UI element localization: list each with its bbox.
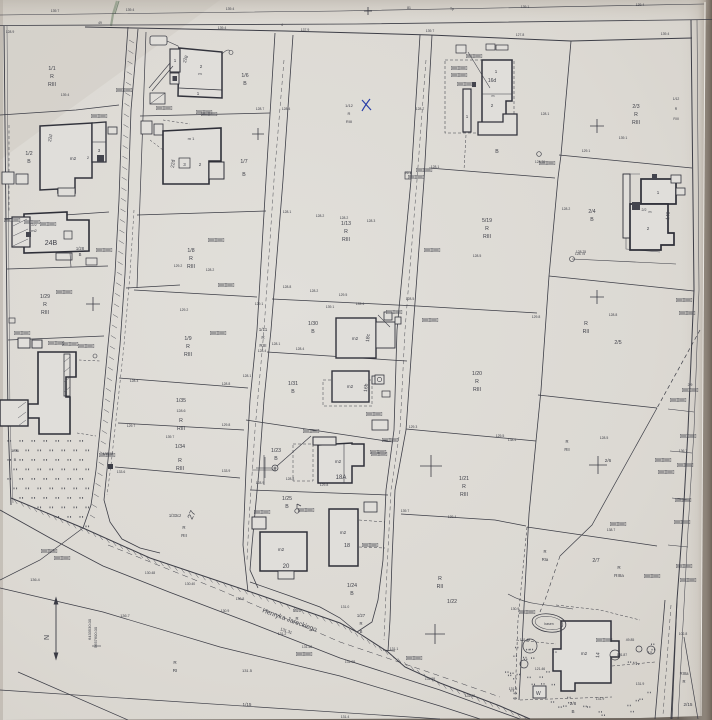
svg-text:128.2: 128.2 [206,268,215,272]
svg-text:1/12: 1/12 [673,97,680,101]
svg-text:18c: 18c [365,333,372,342]
svg-text:131.1: 131.1 [390,647,399,651]
svg-text:B: B [590,217,594,223]
svg-text:129.1: 129.1 [255,302,264,306]
svg-text:128.75: 128.75 [576,250,586,254]
svg-text:136.4: 136.4 [30,578,40,582]
svg-text:129.1: 129.1 [582,149,591,153]
svg-text:1/25: 1/25 [282,496,292,502]
svg-text:128.8: 128.8 [283,285,292,289]
svg-text:14: 14 [595,652,601,658]
svg-text:B: B [495,149,499,155]
svg-text:2/8: 2/8 [570,701,577,706]
svg-text:131.2: 131.2 [278,632,287,636]
svg-text:m: m [492,94,495,98]
svg-text:B: B [14,457,17,462]
svg-text:139.4: 139.4 [226,7,235,11]
svg-text:139.4: 139.4 [636,3,645,7]
svg-text:49.85: 49.85 [626,638,635,642]
svg-text:R: R [344,229,348,235]
svg-text:R: R [50,74,54,80]
svg-text:133.6: 133.6 [117,470,126,474]
svg-text:1/29: 1/29 [40,294,50,300]
svg-text:139.4: 139.4 [448,515,457,519]
svg-text:139.7: 139.7 [166,435,175,439]
svg-text:RIII: RIII [176,466,184,472]
svg-text:130.48: 130.48 [145,571,155,575]
svg-text:2/15: 2/15 [684,702,693,707]
svg-text:RIII: RIII [346,119,352,124]
svg-text:R: R [584,321,588,327]
svg-text:1/2: 1/2 [25,151,32,157]
svg-text:1/8: 1/8 [187,248,194,254]
svg-text:RIII: RIII [483,234,491,240]
svg-text:5657600.00: 5657600.00 [93,626,98,648]
svg-text:128.7: 128.7 [256,107,265,111]
svg-text:131.48: 131.48 [302,645,312,649]
svg-text:2/4: 2/4 [588,209,595,215]
svg-text:RIII: RIII [177,426,185,432]
svg-text:139.4: 139.4 [61,93,70,97]
svg-text:138.4: 138.4 [508,438,517,442]
svg-text:128.2: 128.2 [316,214,325,218]
svg-text:20: 20 [283,564,290,570]
svg-text:129.2: 129.2 [174,264,183,268]
svg-text:1/12: 1/12 [345,103,354,108]
svg-text:m2: m2 [347,384,354,389]
svg-text:139.1: 139.1 [521,5,530,9]
svg-text:Tp: Tp [450,7,454,11]
svg-text:128.2: 128.2 [310,289,319,293]
svg-text:RIII: RIII [41,310,49,316]
svg-text:RIII: RIII [259,343,266,348]
svg-text:1/30: 1/30 [308,321,318,327]
svg-text:128.5: 128.5 [473,254,482,258]
svg-text:m2: m2 [335,459,342,464]
svg-text:R: R [565,439,568,444]
svg-text:128.5: 128.5 [406,297,415,301]
svg-text:4: 4 [281,23,283,27]
svg-text:2/5: 2/5 [614,340,621,346]
svg-text:B: B [571,709,574,714]
svg-text:16b: 16b [363,383,370,392]
svg-text:R: R [182,525,185,530]
svg-text:R: R [543,549,546,554]
svg-text:RII: RII [181,533,187,538]
svg-text:B: B [27,159,31,165]
svg-text:128.4: 128.4 [282,107,291,111]
svg-text:1/24: 1/24 [347,583,357,589]
svg-text:129.8: 129.8 [320,483,329,487]
svg-text:130.9: 130.9 [221,609,230,613]
svg-text:R: R [682,679,685,684]
svg-text:B: B [350,591,354,597]
svg-text:RIa: RIa [542,557,549,562]
svg-text:128.3: 128.3 [367,219,376,223]
svg-text:128.8: 128.8 [222,382,231,386]
svg-text:RIII: RIII [48,82,56,88]
svg-text:R: R [348,111,351,116]
svg-text:1/15: 1/15 [243,702,252,707]
svg-text:R: R [178,458,182,464]
svg-text:128.1: 128.1 [243,374,252,378]
svg-text:139.4: 139.4 [218,26,227,30]
svg-text:129.8: 129.8 [532,315,541,319]
svg-text:RIII: RIII [342,237,350,243]
svg-text:131.99: 131.99 [425,677,435,681]
svg-text:R: R [189,256,193,262]
svg-text:B: B [242,172,246,178]
svg-text:128.5: 128.5 [600,436,609,440]
svg-text:B: B [311,329,315,335]
svg-text:128.9: 128.9 [6,30,15,34]
svg-text:2/7: 2/7 [592,558,599,564]
svg-text:128.9: 128.9 [256,481,265,485]
svg-text:RII: RII [437,584,444,590]
svg-text:102.8: 102.8 [679,632,688,636]
svg-text:128.2: 128.2 [340,216,349,220]
svg-text:RIII: RIII [460,492,468,498]
svg-text:136.7: 136.7 [120,614,130,618]
svg-text:5/20: 5/20 [293,608,302,613]
svg-text:m 1: m 1 [188,136,195,141]
svg-text:129.5: 129.5 [339,293,348,297]
svg-text:1/9: 1/9 [184,336,191,342]
svg-text:N: N [44,635,51,640]
svg-text:131.8: 131.8 [509,687,518,691]
svg-text:m2: m2 [340,530,347,535]
svg-text:128.7: 128.7 [416,107,425,111]
svg-text:RIII: RIII [473,387,481,393]
svg-text:129.8: 129.8 [222,423,231,427]
svg-text:139.4: 139.4 [126,8,135,12]
svg-text:1/31: 1/31 [288,381,298,387]
svg-text:139.1: 139.1 [326,305,335,309]
svg-text:139.1: 139.1 [619,136,628,140]
svg-text:2/2: 2/2 [642,208,647,212]
svg-text:1/36: 1/36 [11,448,20,453]
svg-text:128.8: 128.8 [609,313,618,317]
svg-text:6433530.00: 6433530.00 [87,618,92,640]
svg-text:129.3: 129.3 [409,425,418,429]
svg-text:B: B [360,629,363,634]
svg-text:5/19: 5/19 [482,218,492,224]
svg-text:R: R [179,418,183,424]
svg-text:1/27: 1/27 [357,613,366,618]
svg-text:R: R [634,112,638,118]
svg-text:W: W [536,691,541,697]
svg-text:22d: 22d [170,159,177,168]
svg-text:R: R [359,621,362,626]
svg-text:128.2: 128.2 [562,207,571,211]
svg-text:131.48: 131.48 [465,694,475,698]
svg-text:basen: basen [544,622,553,626]
svg-text:139.7: 139.7 [426,29,435,33]
svg-text:1/33cz: 1/33cz [169,513,181,518]
svg-text:26.1: 26.1 [405,171,412,175]
svg-text:1/35: 1/35 [176,398,186,404]
svg-text:B: B [285,504,289,510]
svg-text:1/28: 1/28 [76,246,85,251]
svg-text:16d: 16d [488,78,497,84]
svg-text:128.1: 128.1 [283,210,292,214]
svg-text:139.7: 139.7 [51,9,60,13]
svg-text:140: 140 [665,211,672,220]
svg-text:B: B [274,456,278,462]
svg-text:1/23: 1/23 [271,448,281,454]
svg-text:1/34: 1/34 [175,444,185,450]
svg-text:1/20: 1/20 [472,371,482,377]
svg-text:128.1: 128.1 [541,112,550,116]
svg-text:131.5: 131.5 [242,668,253,673]
svg-text:131.9: 131.9 [636,682,645,686]
svg-text:139.7: 139.7 [401,509,410,513]
svg-text:m2: m2 [31,228,37,233]
svg-text:R: R [462,484,466,490]
svg-text:137.9: 137.9 [301,28,310,32]
svg-text:1/1: 1/1 [48,66,55,72]
svg-text:m2: m2 [352,336,359,341]
svg-text:RI: RI [173,668,178,673]
svg-text:m2: m2 [70,156,77,161]
svg-text:133.9: 133.9 [222,469,231,473]
svg-text:139.4: 139.4 [356,302,365,306]
svg-text:m: m [649,210,652,214]
svg-text:128.4: 128.4 [296,347,305,351]
svg-text:R: R [485,226,489,232]
svg-text:128.8: 128.8 [286,477,295,481]
svg-text:RIII: RIII [184,352,192,358]
svg-text:1/11: 1/11 [259,327,268,332]
svg-text:129.5: 129.5 [496,434,505,438]
svg-text:1/21: 1/21 [459,476,469,482]
svg-text:R: R [295,616,298,621]
svg-text:R: R [438,576,442,582]
svg-text:R: R [186,344,190,350]
svg-text:RII: RII [583,329,590,335]
svg-text:B: B [291,389,295,395]
svg-text:139.4: 139.4 [661,32,670,36]
svg-text:2/9: 2/9 [688,383,693,387]
svg-text:130.40: 130.40 [185,582,195,586]
svg-text:R: R [475,379,479,385]
svg-text:81: 81 [407,6,411,10]
svg-text:131.08: 131.08 [345,660,355,664]
svg-text:49: 49 [98,21,102,25]
svg-text:2/2: 2/2 [31,222,37,227]
svg-text:121.87: 121.87 [617,653,627,657]
svg-text:B: B [79,252,82,257]
svg-text:18: 18 [344,543,350,549]
svg-text:24B: 24B [45,240,58,247]
svg-text:131.0: 131.0 [341,605,350,609]
svg-text:129.7: 129.7 [127,424,136,428]
svg-text:128.1: 128.1 [272,342,281,346]
svg-text:18A: 18A [336,475,347,481]
svg-text:1/13: 1/13 [341,221,351,227]
svg-text:2/6: 2/6 [605,458,612,463]
svg-text:RIIIa: RIIIa [680,671,690,676]
svg-text:m2: m2 [278,547,285,552]
svg-text:1/7: 1/7 [240,159,247,165]
svg-text:m2: m2 [581,651,588,656]
svg-text:1/22: 1/22 [447,599,457,605]
svg-text:B: B [243,81,247,87]
svg-text:127.8: 127.8 [516,33,525,37]
svg-text:128.6: 128.6 [177,409,186,413]
svg-text:131.4: 131.4 [341,715,350,719]
svg-text:RIIIa: RIIIa [614,573,624,578]
svg-text:128.4: 128.4 [258,349,267,353]
svg-text:RIII: RIII [673,117,678,121]
svg-text:138.7: 138.7 [607,528,616,532]
svg-text:RII: RII [564,447,569,452]
svg-text:129.2: 129.2 [180,308,189,312]
svg-text:RIII: RIII [187,264,195,270]
svg-text:130.8: 130.8 [236,597,245,601]
svg-text:RIII: RIII [632,120,640,126]
svg-text:121.48: 121.48 [520,638,530,642]
svg-text:1/6: 1/6 [241,73,248,79]
svg-text:130.9: 130.9 [511,607,520,611]
svg-text:2/3: 2/3 [632,104,639,110]
svg-text:128.3: 128.3 [130,379,139,383]
svg-text:136.7: 136.7 [679,449,688,453]
svg-text:R: R [43,302,47,308]
svg-text:131.9: 131.9 [596,697,605,701]
svg-text:121.46: 121.46 [535,667,545,671]
